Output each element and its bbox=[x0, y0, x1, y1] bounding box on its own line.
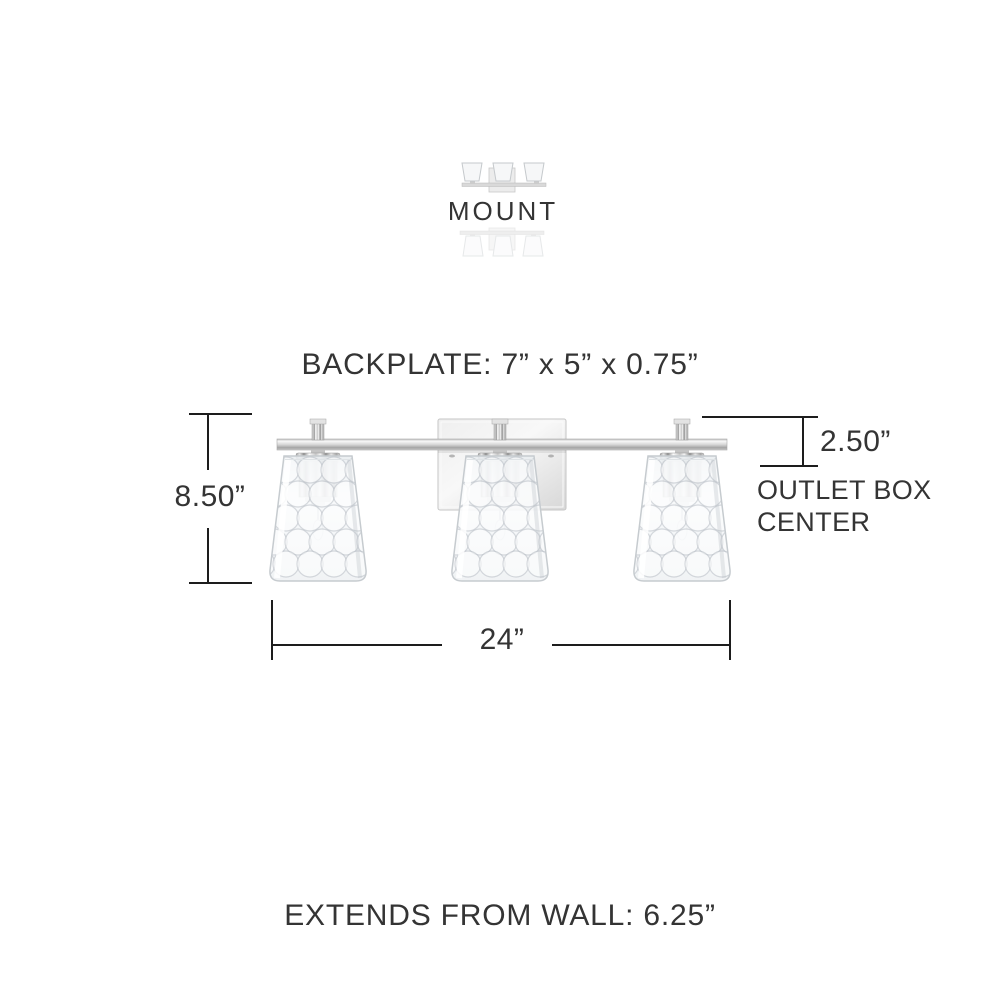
fixture-width-label: 24” bbox=[450, 623, 554, 657]
outlet-box-center-label: OUTLET BOX CENTER bbox=[757, 475, 932, 538]
backplate-screw-right bbox=[548, 455, 554, 458]
vanity-fixture bbox=[249, 419, 747, 581]
mount-orientation-down-icon bbox=[460, 228, 544, 256]
backplate-screw-left bbox=[449, 455, 455, 458]
mount-orientation-up-icon bbox=[462, 163, 546, 192]
mount-bar bbox=[277, 439, 727, 450]
product-dimension-diagram: MOUNT BACKPLATE: 7” x 5” x 0.75” 8.50” 2… bbox=[0, 0, 1000, 1000]
backplate-dimension-label: BACKPLATE: 7” x 5” x 0.75” bbox=[0, 348, 1000, 382]
fixture-height-label: 8.50” bbox=[150, 480, 270, 514]
extends-from-wall-label: EXTENDS FROM WALL: 6.25” bbox=[0, 899, 1000, 933]
mount-label: MOUNT bbox=[403, 196, 603, 227]
outlet-offset-label: 2.50” bbox=[820, 425, 891, 459]
